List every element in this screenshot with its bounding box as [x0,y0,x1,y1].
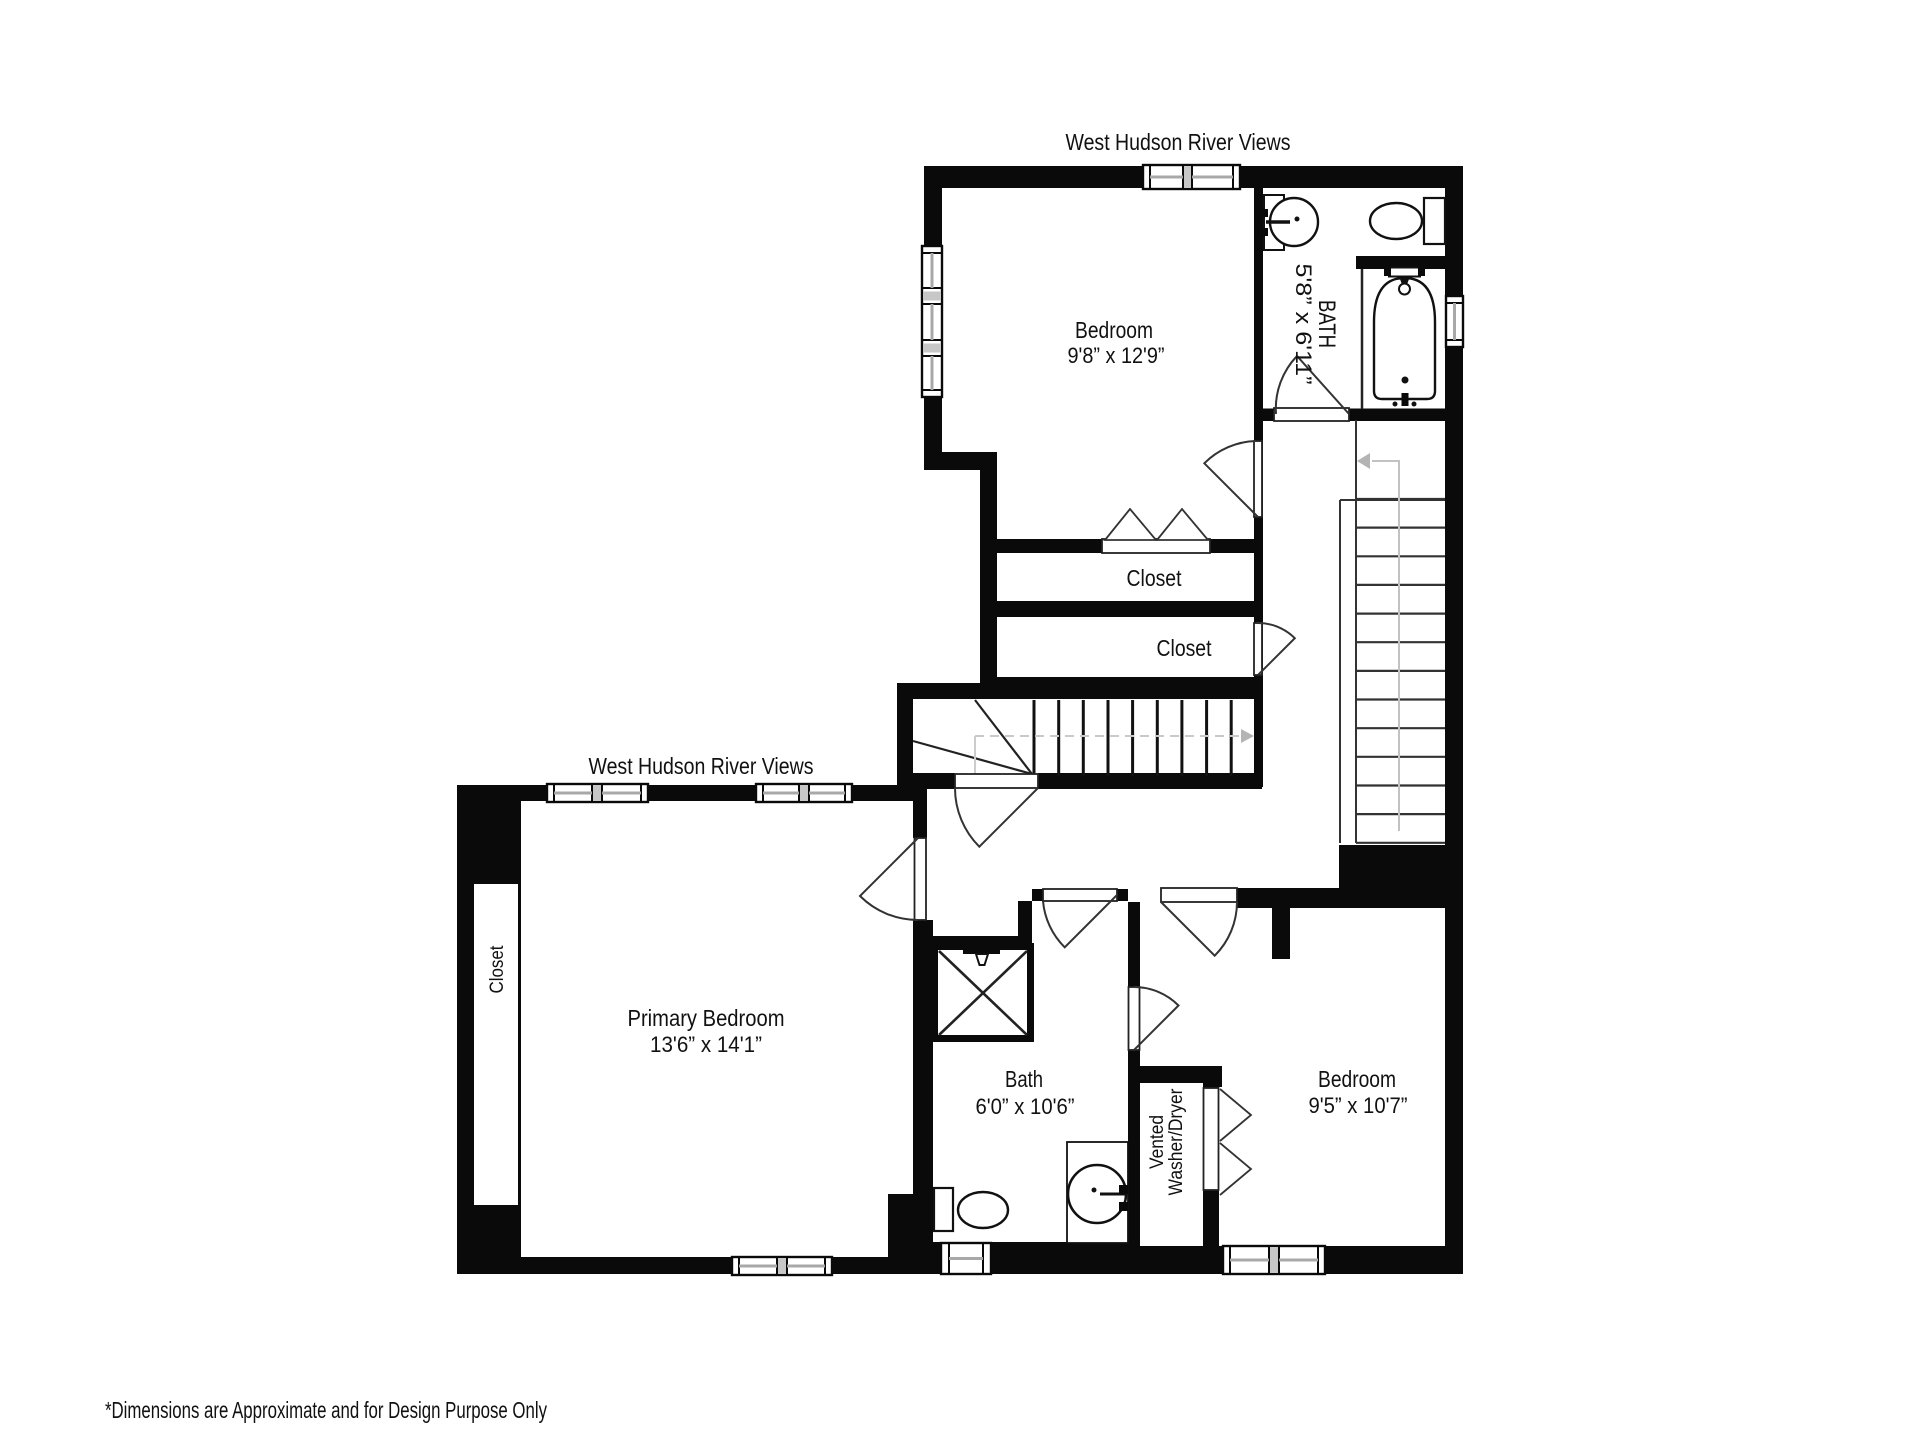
svg-text:6'0” x 10'6”: 6'0” x 10'6” [976,1094,1075,1119]
svg-text:Closet: Closet [1157,635,1213,661]
svg-text:Vented: Vented [1147,1115,1168,1169]
svg-text:9'8” x 12'9”: 9'8” x 12'9” [1068,343,1165,368]
svg-text:5'8” x 6'11”: 5'8” x 6'11” [1291,264,1316,385]
svg-text:BATH: BATH [1313,300,1340,348]
svg-text:West Hudson River Views: West Hudson River Views [1066,129,1291,155]
svg-text:13'6” x 14'1”: 13'6” x 14'1” [650,1032,762,1057]
svg-text:Bedroom: Bedroom [1318,1066,1396,1092]
svg-text:Bath: Bath [1005,1066,1043,1092]
svg-text:*Dimensions are Approximate an: *Dimensions are Approximate and for Desi… [105,1397,547,1423]
svg-text:Closet: Closet [1127,565,1183,591]
svg-text:Bedroom: Bedroom [1075,317,1153,343]
svg-text:Primary Bedroom: Primary Bedroom [628,1005,785,1031]
svg-text:Closet: Closet [487,945,508,994]
svg-text:West Hudson River Views: West Hudson River Views [589,753,814,779]
svg-text:9'5” x 10'7”: 9'5” x 10'7” [1309,1093,1408,1118]
svg-text:Washer/Dryer: Washer/Dryer [1166,1088,1187,1196]
